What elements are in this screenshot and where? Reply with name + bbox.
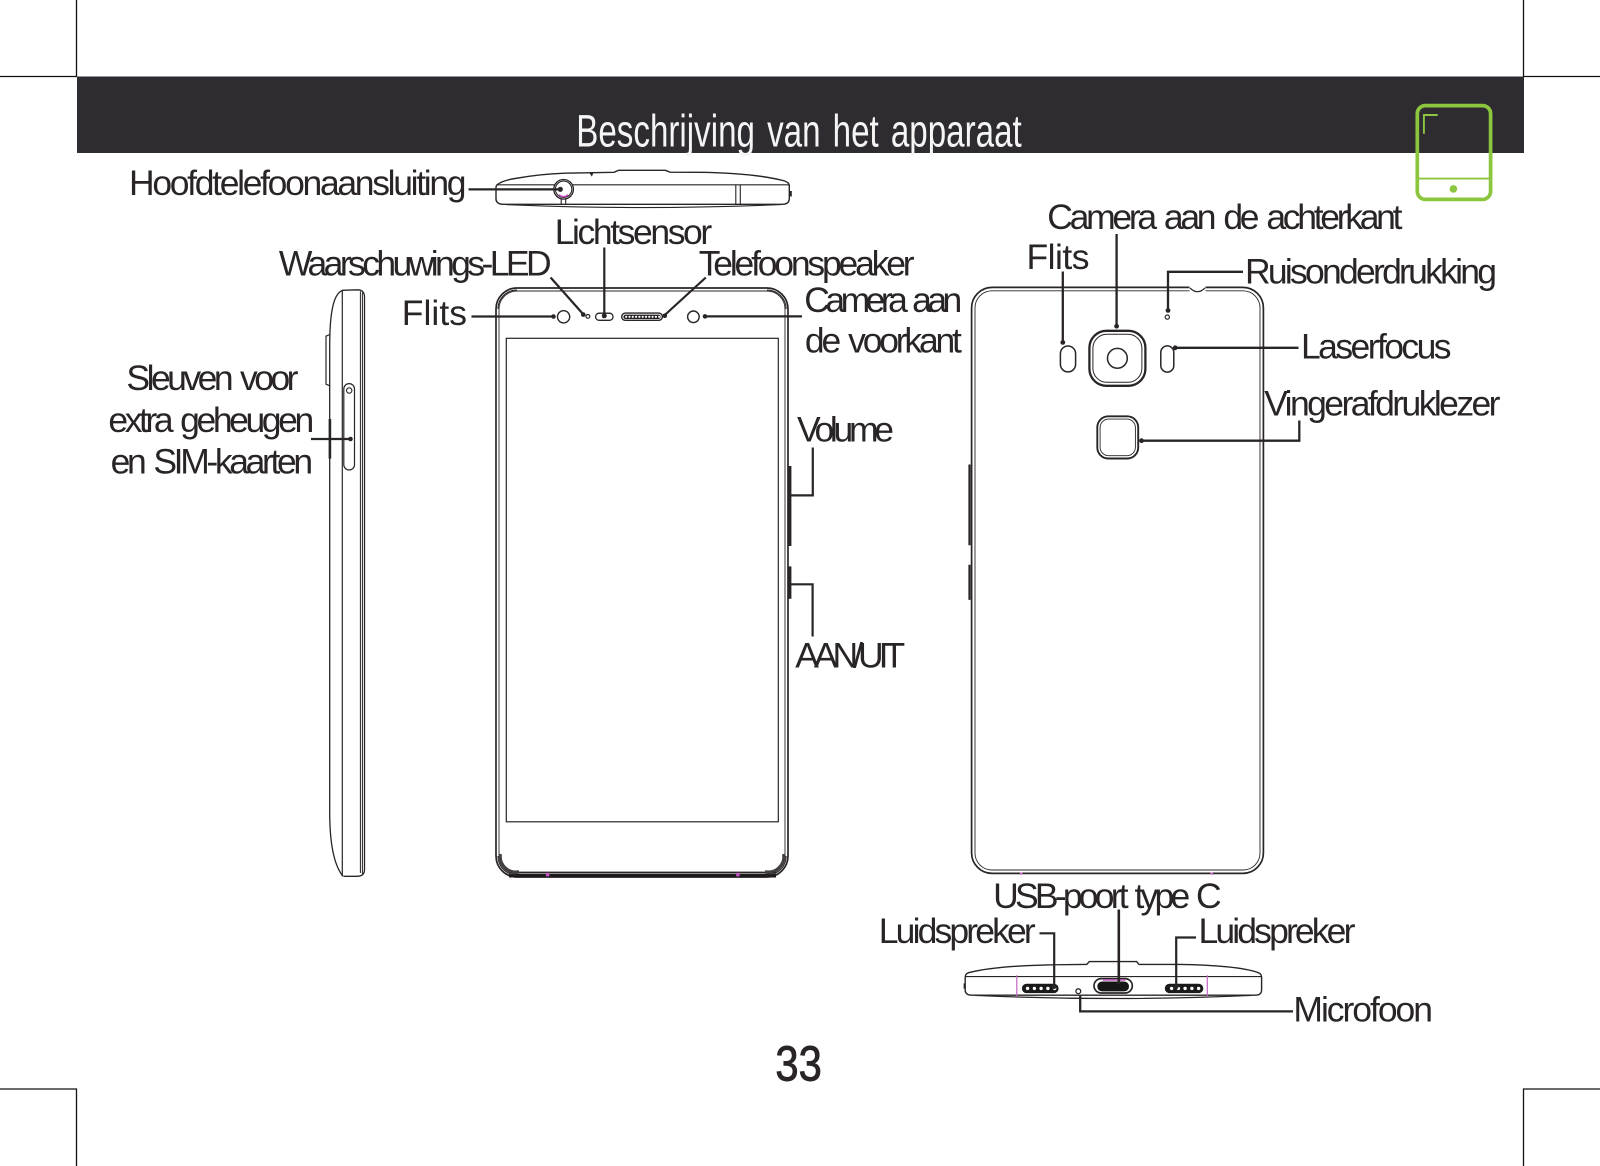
- svg-text:Flits: Flits: [1027, 237, 1090, 277]
- svg-text:AAN/UIT: AAN/UIT: [795, 636, 905, 676]
- svg-text:extra geheugen: extra geheugen: [108, 400, 314, 440]
- svg-text:Sleuven voor: Sleuven voor: [126, 358, 298, 398]
- svg-text:Lichtsensor: Lichtsensor: [555, 212, 713, 252]
- svg-text:Laserfocus: Laserfocus: [1301, 326, 1452, 366]
- svg-text:33: 33: [775, 1036, 821, 1091]
- svg-text:USB-poort type C: USB-poort type C: [993, 876, 1222, 916]
- svg-text:Camera aan de achterkant: Camera aan de achterkant: [1047, 197, 1402, 237]
- svg-text:Waarschuwings-LED: Waarschuwings-LED: [279, 243, 552, 283]
- svg-text:de voorkant: de voorkant: [805, 321, 962, 361]
- svg-text:en SIM-kaarten: en SIM-kaarten: [111, 442, 314, 482]
- svg-text:Camera aan: Camera aan: [804, 280, 962, 320]
- svg-text:Volume: Volume: [797, 410, 894, 450]
- svg-text:Luidspreker: Luidspreker: [879, 911, 1036, 951]
- svg-text:Telefoonspeaker: Telefoonspeaker: [699, 243, 915, 283]
- svg-text:Microfoon: Microfoon: [1293, 990, 1433, 1030]
- svg-text:Luidspreker: Luidspreker: [1199, 911, 1356, 951]
- svg-text:Flits: Flits: [402, 293, 467, 333]
- svg-text:Ruisonderdrukking: Ruisonderdrukking: [1245, 252, 1497, 292]
- svg-text:Hoofdtelefoonaansluiting: Hoofdtelefoonaansluiting: [129, 163, 467, 203]
- svg-text:Vingerafdruklezer: Vingerafdruklezer: [1264, 383, 1500, 423]
- svg-text:Beschrijving van het apparaat: Beschrijving van het apparaat: [576, 106, 1022, 157]
